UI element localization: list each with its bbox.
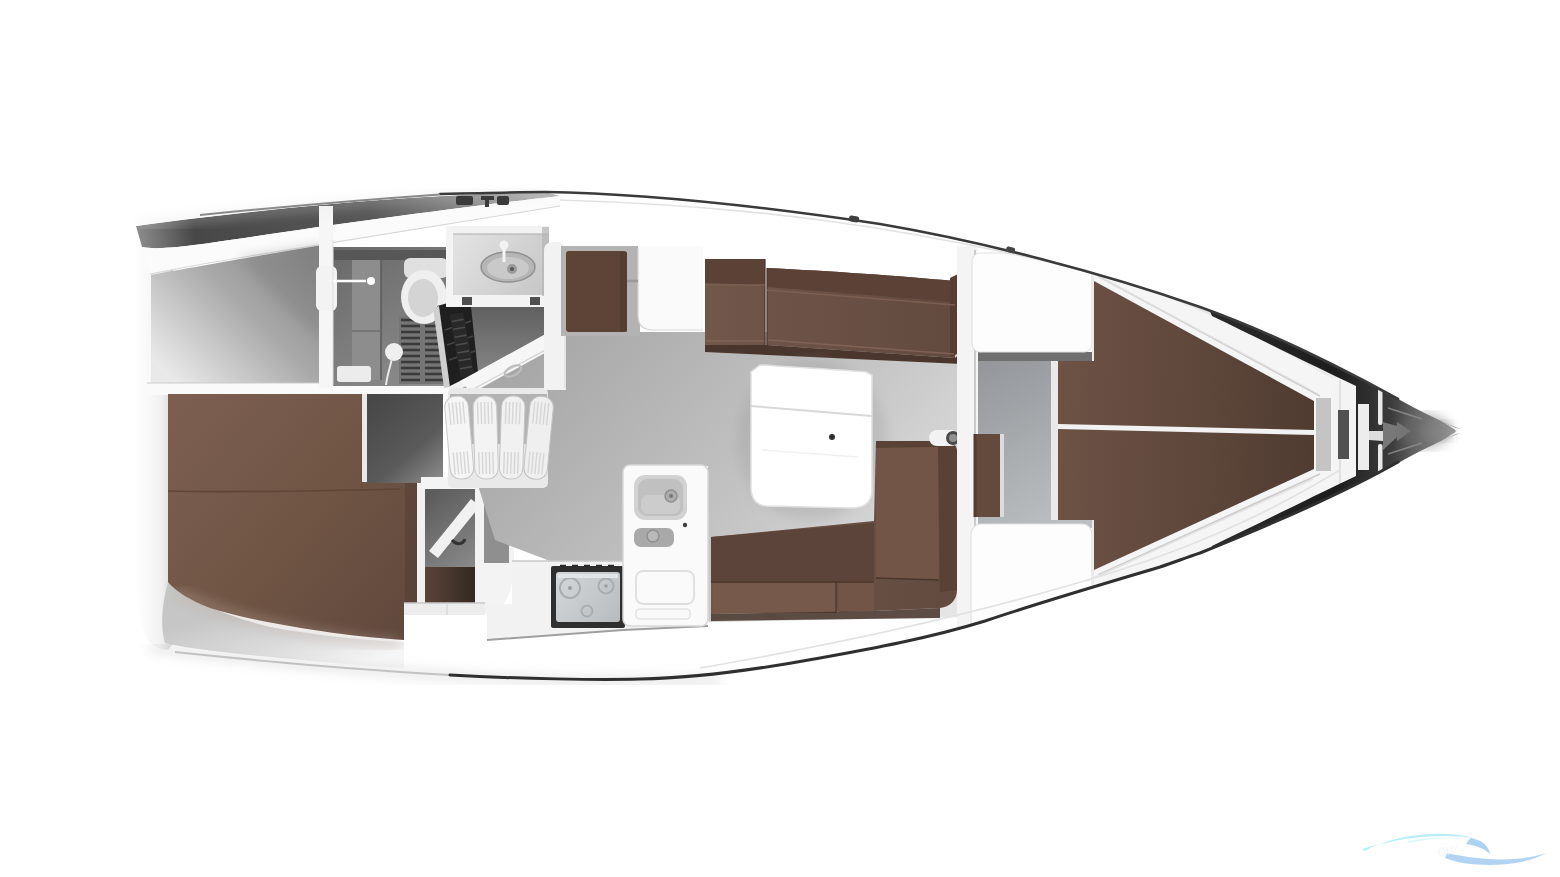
svg-text:ow: ow [1437,840,1459,859]
